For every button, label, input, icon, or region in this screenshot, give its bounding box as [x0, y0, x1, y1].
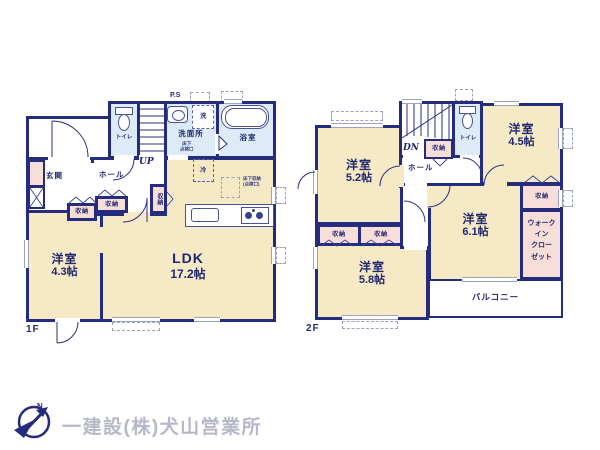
floor-label-2f: 2F: [306, 323, 320, 335]
laundry-label: 洗: [200, 113, 207, 120]
ldk-name: LDK: [100, 250, 276, 267]
opening-room45: [484, 181, 507, 186]
washroom-note-line2: 点検口: [180, 147, 194, 153]
washbasin-bowl: [172, 110, 185, 121]
room58-label: 洋室 5.8帖: [315, 260, 429, 287]
floor-plan-page: 収納 収納 収納 冷 床下収納 (点検口) 洗: [0, 0, 600, 450]
washroom-label: 洗面所: [166, 130, 216, 139]
hall-label-1f: ホール: [99, 171, 125, 180]
toilet-label-1f: トイレ: [108, 134, 140, 146]
wic-line3: クロー: [520, 240, 563, 251]
toilet-bowl-2f: [462, 113, 473, 129]
wic-line2: イン: [520, 229, 563, 240]
opening-washroom-hall: [168, 155, 188, 160]
entrance-label: 玄関: [46, 172, 63, 181]
room-porch: [26, 116, 112, 160]
opening-room61: [427, 186, 432, 208]
toilet-bowl-1f: [118, 114, 130, 131]
room43-name: 洋室: [26, 252, 103, 266]
closet-label-text: 収納: [535, 193, 549, 200]
fridge-label: 冷: [200, 167, 207, 174]
closet-label: 収納: [75, 208, 89, 215]
closet-label: 収納: [432, 145, 446, 152]
opening-room58: [404, 245, 427, 250]
toilet-label-2f: トイレ: [452, 135, 483, 147]
kitchen-sink: [191, 208, 219, 222]
room52-name: 洋室: [315, 158, 403, 172]
kitchen-stove: [241, 207, 269, 224]
ps-label: P.S: [170, 92, 180, 100]
balcony-door: [462, 277, 517, 282]
window: [494, 101, 519, 106]
room45-label: 洋室 4.5帖: [480, 122, 563, 149]
closet-label: 収納: [155, 193, 162, 205]
room45-size: 4.5帖: [480, 136, 563, 149]
room61-label: 洋室 6.1帖: [428, 212, 523, 239]
toilet-label-text: トイレ: [459, 135, 476, 141]
shoe-cabinet: [28, 160, 45, 187]
bath-label: 浴室: [226, 134, 270, 143]
window: [224, 99, 242, 104]
bathtub-inner: [225, 108, 267, 127]
room61-size: 6.1帖: [428, 226, 523, 239]
eaves-box: [331, 111, 383, 121]
toilet-label-text: トイレ: [116, 134, 133, 140]
washroom-note: 床下 点検口: [180, 141, 194, 152]
window: [342, 315, 398, 320]
hall-label-2f: ホール: [408, 164, 434, 173]
room58-size: 5.8帖: [315, 274, 429, 287]
washbasin: [167, 106, 188, 123]
void-column-box: [28, 186, 45, 209]
window: [271, 187, 276, 204]
opening-toilet-hall: [114, 155, 134, 160]
ldk-label: LDK 17.2帖: [100, 250, 276, 281]
stove-burner: [245, 212, 252, 219]
pipe-space-box: [455, 89, 473, 101]
closet-label: 収納: [332, 231, 346, 238]
ldk-size: 17.2帖: [100, 267, 276, 281]
closet-low-1f: 収納: [67, 203, 97, 221]
laundry-pan: 洗: [192, 105, 214, 129]
compass-n-label: N: [37, 402, 43, 411]
room43-label: 洋室 4.3帖: [26, 252, 103, 279]
underfloor-storage-note: 床下収納 (点検口): [243, 176, 261, 187]
compass-north-icon: [14, 407, 49, 438]
stairs-1f: [137, 101, 167, 159]
closet-a-2f: 収納: [317, 224, 361, 246]
fridge-space: 冷: [193, 159, 214, 182]
closet-label: 収納: [374, 231, 388, 238]
underfloor-note-line2: (点検口): [243, 182, 261, 188]
wic-line4: ゼット: [520, 252, 563, 263]
stairs-down-label: DN: [403, 143, 419, 154]
underfloor-storage-hatch: [221, 177, 240, 198]
opening-porch-entrance: [48, 155, 90, 161]
closet-b-2f: 収納: [358, 224, 403, 246]
closet-label: 収納: [105, 201, 119, 208]
floor-label-1f: 1F: [26, 324, 40, 336]
window: [402, 99, 422, 104]
window: [331, 123, 383, 128]
balcony-label: バルコニー: [428, 292, 563, 302]
window-shutter-box: [276, 187, 286, 204]
window-shutter-box: [563, 128, 573, 149]
door-arc-room43-exterior: [57, 322, 78, 343]
window-shutter-box: [276, 247, 286, 264]
opening-hall-column: [405, 182, 427, 190]
stairs-up-label: UP: [139, 157, 154, 168]
room52-label: 洋室 5.2帖: [315, 158, 403, 185]
walk-in-closet-label: ウォーク イン クロー ゼット: [520, 218, 563, 263]
window-shutter-box: [563, 190, 573, 207]
opening-toilet-hall-2f: [460, 155, 479, 160]
closet-stairs-2f: 収納: [424, 139, 453, 159]
room45-name: 洋室: [480, 122, 563, 136]
terrace-step: [342, 321, 398, 329]
company-name: 一建設(株)犬山営業所: [62, 412, 262, 439]
closet-mid-1f: 収納: [95, 196, 128, 213]
room52-size: 5.2帖: [315, 172, 403, 185]
closet-hall-1f: 収納: [150, 184, 167, 214]
window: [194, 317, 220, 322]
room58-name: 洋室: [315, 260, 429, 274]
closet-right-label: 収納: [520, 188, 563, 206]
stove-burner-small: [252, 209, 255, 212]
room61-name: 洋室: [428, 212, 523, 226]
terrace-step: [112, 322, 160, 331]
room43-size: 4.3帖: [26, 266, 103, 279]
window: [112, 317, 160, 322]
bathtub: [221, 105, 269, 129]
stove-burner: [256, 212, 263, 219]
door-opening-room43: [55, 318, 80, 323]
wic-line1: ウォーク: [520, 218, 563, 229]
